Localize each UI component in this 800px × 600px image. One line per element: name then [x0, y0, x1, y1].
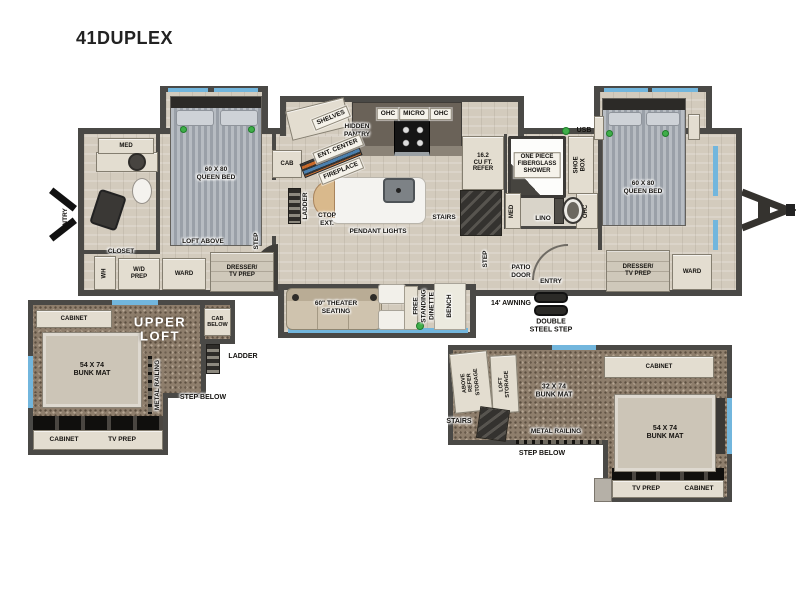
dinette-seat — [378, 284, 406, 304]
right-loft-cabinet-top-label: CABINET — [646, 364, 673, 371]
ward-rear-label: WARD — [683, 269, 701, 276]
loft-cabinet-bottom-label: CABINET — [50, 436, 79, 444]
ladder-icon — [288, 188, 301, 224]
dresser-tv-prep-front: DRESSER/ TV PREP — [210, 252, 274, 292]
stairs-label: STAIRS — [432, 214, 455, 222]
reading-light-icon — [180, 126, 187, 133]
wh-label: WH — [102, 268, 109, 278]
nightstand — [688, 114, 700, 140]
metal-railing — [148, 356, 152, 414]
loft-tv-band — [33, 416, 163, 430]
ward-label: WARD — [175, 271, 193, 278]
washer-dryer-prep: W/D PREP — [118, 258, 160, 290]
loft-cabinet-top: CABINET — [36, 310, 112, 328]
awning-label: 14' AWNING — [491, 300, 531, 308]
headboard — [603, 99, 685, 110]
wardrobe-front: WARD — [162, 258, 206, 290]
dresser-tv-prep-rear: DRESSER/ TV PREP — [606, 250, 670, 292]
step-label-living: STEP — [482, 251, 490, 268]
nightstand — [594, 116, 604, 140]
water-heater: WH — [94, 256, 116, 290]
micro-tag: MICRO — [399, 108, 429, 120]
wall-accent — [713, 220, 718, 250]
floor-light-icon — [416, 322, 424, 330]
loft-stairs-icon — [476, 406, 510, 442]
loft-accent — [552, 345, 596, 350]
wd-prep-label: W/D PREP — [131, 267, 147, 281]
pendant-lights-label: PENDANT LIGHTS — [349, 228, 406, 236]
reading-light-icon — [606, 130, 613, 137]
cab-label: CAB — [281, 161, 294, 168]
patio-door-label: PATIO DOOR — [511, 264, 531, 280]
toilet-icon — [562, 197, 584, 224]
loft-above-label: LOFT ABOVE — [182, 238, 224, 246]
headboard — [171, 97, 261, 108]
loft-bunk-mat: 54 X 74 BUNK MAT — [42, 332, 142, 408]
right-loft-bunk-mat: 54 X 74 BUNK MAT — [614, 394, 716, 472]
dinette-seat — [378, 310, 406, 330]
bunk-small-label: 32 X 74 BUNK MAT — [536, 384, 573, 401]
med-cabinet-rear: MED — [505, 193, 521, 229]
bench-label: BENCH — [446, 294, 454, 317]
reading-light-icon — [248, 126, 255, 133]
above-refer-storage-label: ABOVE REFER STORAGE — [460, 368, 482, 397]
ladder-label: LADDER — [302, 192, 310, 219]
right-loft-tv-prep-label: TV PREP — [632, 485, 660, 493]
upper-loft-title: UPPER LOFT — [134, 315, 186, 342]
wardrobe-rear: WARD — [672, 254, 712, 290]
ohc-left-tag: OHC — [377, 108, 399, 120]
loft-ladder-icon — [206, 344, 220, 374]
step-below-label-left: STEP BELOW — [180, 394, 226, 402]
entry-steps-icon — [534, 305, 568, 316]
faucet-icon — [396, 188, 401, 193]
loft-bunk-label: 54 X 74 BUNK MAT — [74, 362, 111, 379]
pillow — [608, 112, 642, 126]
loft-accent — [28, 356, 33, 408]
slide-accent — [214, 88, 258, 92]
loft-step-block — [594, 478, 612, 502]
metal-railing-right-label: METAL RAILING — [531, 428, 581, 436]
med-rear-label: MED — [510, 204, 517, 217]
entry-label-front: ENTRY — [62, 208, 70, 230]
cab-below: CAB BELOW — [204, 308, 231, 336]
sink-icon — [128, 153, 146, 171]
loft-storage-label: LOFT STORAGE — [497, 370, 511, 398]
rear-bed-label: 60 X 80 QUEEN BED — [624, 180, 663, 196]
cupholder-icon — [370, 294, 377, 301]
ohc-rear-label: OHC — [584, 204, 591, 217]
toilet-icon — [132, 178, 152, 204]
dinette-label: FREE STANDING DINETTE — [412, 289, 435, 322]
entry-steps-icon — [534, 292, 568, 303]
stairs-icon — [460, 190, 502, 236]
ohc-right-tag: OHC — [430, 108, 452, 120]
pillow — [220, 110, 258, 126]
right-loft-cabinet-bottom-label: CABINET — [685, 485, 714, 493]
refrigerator: 16.2 CU FT. REFER — [462, 136, 504, 190]
above-refer-storage: ABOVE REFER STORAGE — [449, 350, 493, 414]
usb-label: USB — [577, 127, 592, 135]
lino-label: LINO — [535, 215, 551, 223]
metal-railing-label: METAL RAILING — [154, 360, 162, 410]
med-label: MED — [119, 143, 132, 150]
refer-label: 16.2 CU FT. REFER — [473, 153, 493, 174]
side-shelf — [716, 398, 725, 454]
loft-accent — [727, 398, 732, 454]
right-loft-bunk-label: 54 X 74 BUNK MAT — [647, 425, 684, 442]
loft-tv-prep-label: TV PREP — [108, 436, 136, 444]
closet-label: CLOSET — [108, 248, 134, 256]
ctop-ext-label: CTOP EXT. — [318, 212, 336, 228]
wall-accent — [713, 146, 718, 196]
dresser-rear-label: DRESSER/ TV PREP — [623, 264, 654, 278]
stove-icon — [394, 118, 430, 156]
dresser-label: DRESSER/ TV PREP — [227, 265, 258, 279]
loft-ladder-label: LADDER — [228, 353, 257, 361]
slide-accent — [652, 88, 698, 92]
step-below-label-right: STEP BELOW — [519, 450, 565, 458]
shoe-box: SHOE BOX — [568, 136, 594, 194]
right-loft-cabinet-top: CABINET — [604, 356, 714, 378]
med-cabinet-front: MED — [98, 138, 154, 154]
step-label-front: STEP — [253, 233, 261, 250]
shoe-box-label: SHOE BOX — [574, 156, 588, 173]
theater-seating-label: 60" THEATER SEATING — [315, 300, 357, 316]
metal-railing-right — [516, 440, 602, 444]
page-title: 41DUPLEX — [76, 28, 173, 49]
double-steel-step-label: DOUBLE STEEL STEP — [530, 319, 573, 336]
cab-cabinet: CAB — [272, 150, 302, 178]
loft-accent — [112, 300, 158, 305]
slide-accent — [604, 88, 648, 92]
usb-indicator — [562, 127, 570, 135]
slide-accent — [168, 88, 208, 92]
loft-cabinet-top-label: CABINET — [61, 316, 88, 323]
shower-label: ONE PIECE FIBERGLASS SHOWER — [514, 152, 561, 178]
loft-stairs-label: STAIRS — [446, 418, 471, 426]
bath-counter — [96, 152, 158, 172]
cab-below-label: CAB BELOW — [207, 316, 227, 329]
cupholder-icon — [292, 294, 299, 301]
front-bed-label: 60 X 80 QUEEN BED — [197, 166, 236, 182]
pillow — [646, 112, 680, 126]
hitch-icon — [742, 186, 796, 234]
entry-label-rear: ENTRY — [540, 278, 562, 286]
pillow — [176, 110, 214, 126]
loft-storage: LOFT STORAGE — [490, 354, 520, 413]
floorplan-canvas: 41DUPLEX 60 X 80 QUEEN BED MED CLOSET WH… — [0, 0, 800, 600]
reading-light-icon — [662, 130, 669, 137]
